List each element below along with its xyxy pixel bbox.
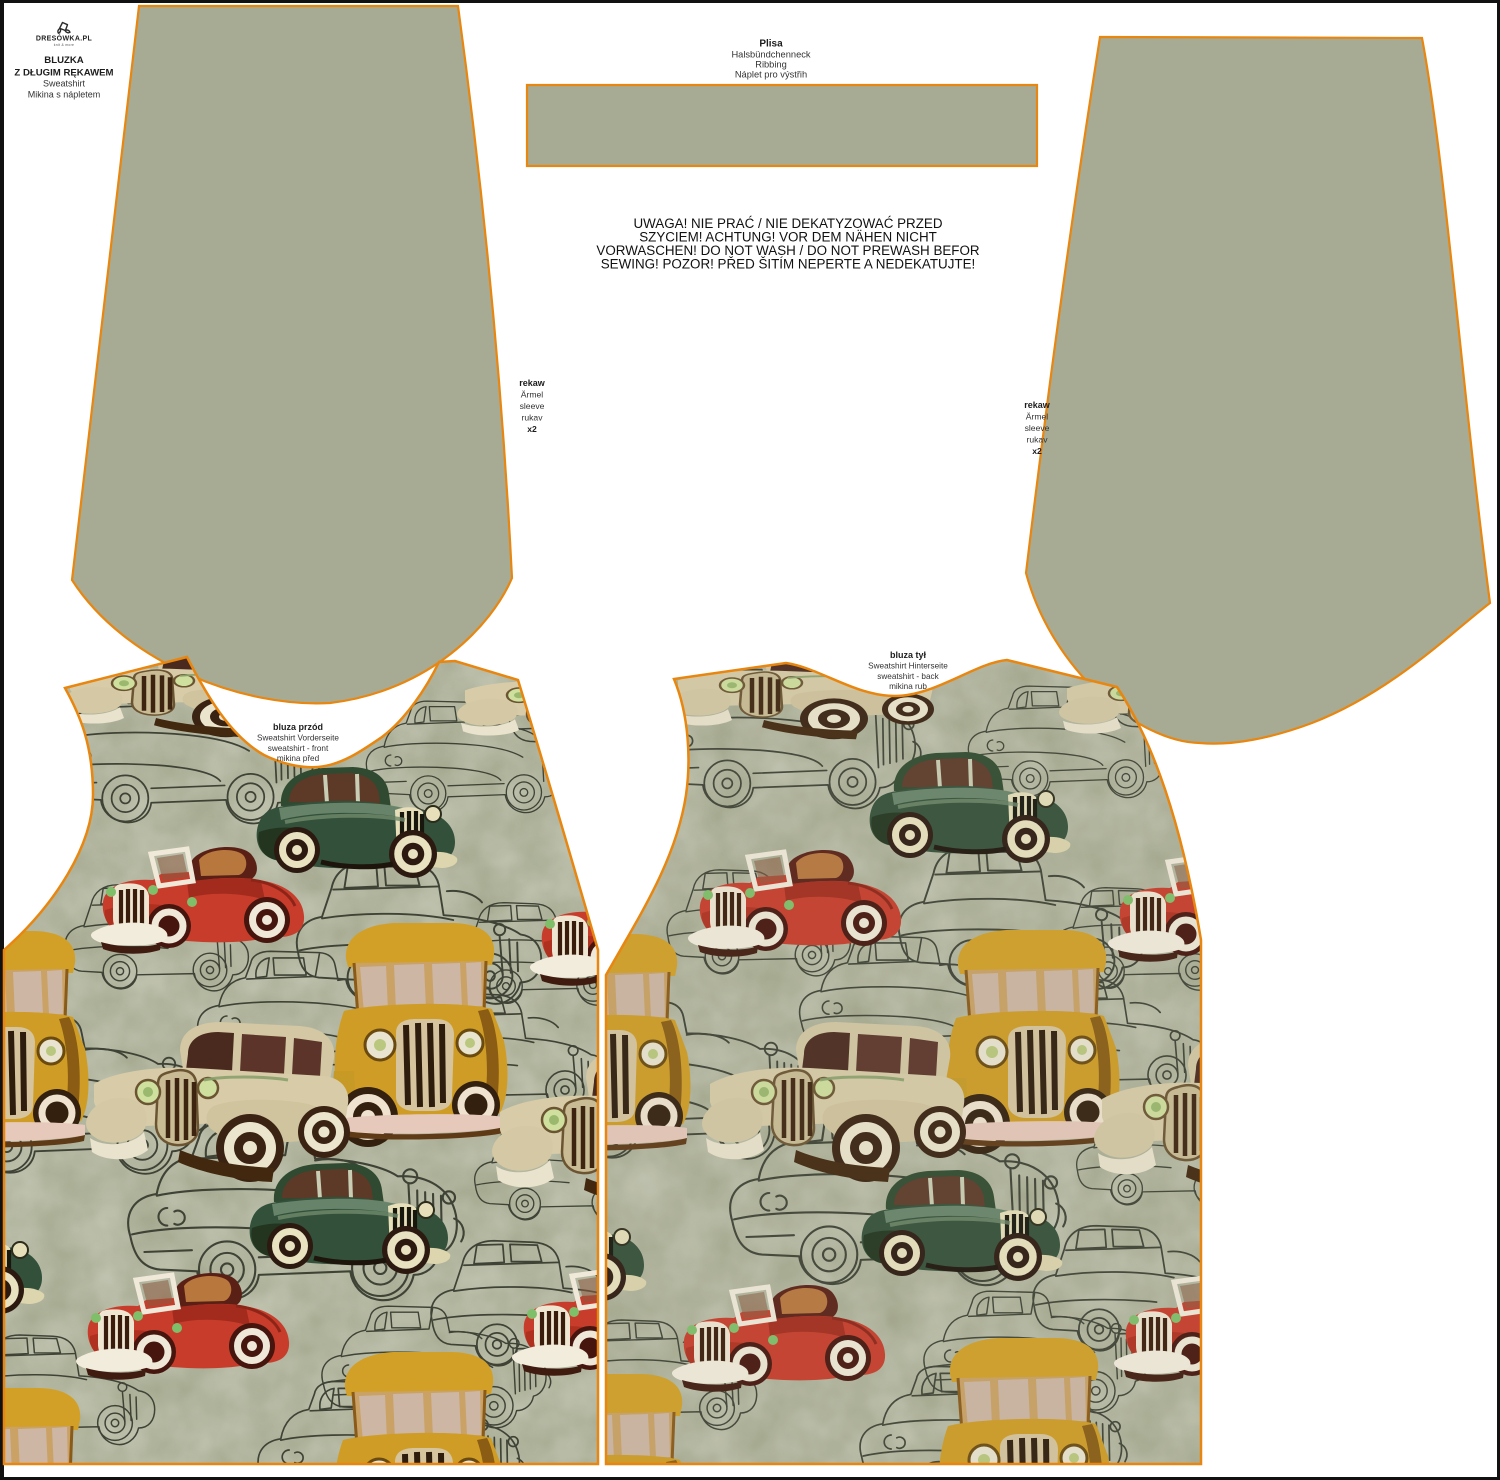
svg-text:Z DŁUGIM RĘKAWEM: Z DŁUGIM RĘKAWEM <box>14 68 113 79</box>
svg-text:Ärmel: Ärmel <box>1026 412 1049 422</box>
svg-text:sweatshirt - back: sweatshirt - back <box>877 672 939 681</box>
svg-text:knit & more: knit & more <box>54 43 74 47</box>
svg-text:sleeve: sleeve <box>520 401 545 411</box>
svg-text:rukav: rukav <box>1026 435 1048 445</box>
svg-text:rekaw: rekaw <box>1024 400 1051 410</box>
svg-text:Sweatshirt: Sweatshirt <box>43 79 86 89</box>
svg-text:Mikina s nápletem: Mikina s nápletem <box>28 90 101 100</box>
svg-text:Náplet pro výstřih: Náplet pro výstřih <box>735 70 807 80</box>
svg-text:Ribbing: Ribbing <box>755 60 787 70</box>
svg-text:mikina rub: mikina rub <box>889 682 927 691</box>
svg-text:DRESÓWKA.PL: DRESÓWKA.PL <box>36 34 93 43</box>
svg-text:mikina před: mikina před <box>277 754 320 763</box>
svg-text:x2: x2 <box>527 424 537 434</box>
svg-text:Plisa: Plisa <box>759 39 783 50</box>
svg-text:rekaw: rekaw <box>519 378 546 388</box>
svg-text:Sweatshirt Vorderseite: Sweatshirt Vorderseite <box>257 734 339 743</box>
svg-text:sweatshirt - front: sweatshirt - front <box>268 744 329 753</box>
svg-text:x2: x2 <box>1032 446 1042 456</box>
svg-text:bluza przód: bluza przód <box>273 722 323 732</box>
svg-text:Sweatshirt Hinterseite: Sweatshirt Hinterseite <box>868 662 948 671</box>
svg-text:rukav: rukav <box>521 413 543 423</box>
svg-text:sleeve: sleeve <box>1025 423 1050 433</box>
svg-text:Halsbündchenneck: Halsbündchenneck <box>731 50 810 60</box>
svg-text:Ärmel: Ärmel <box>521 390 544 400</box>
svg-text:BLUZKA: BLUZKA <box>44 55 84 66</box>
svg-text:bluza tył: bluza tył <box>890 650 927 660</box>
svg-text:SEWING! POZOR! PŘED ŠITÍM NEPE: SEWING! POZOR! PŘED ŠITÍM NEPERTE A NEDE… <box>601 257 976 272</box>
